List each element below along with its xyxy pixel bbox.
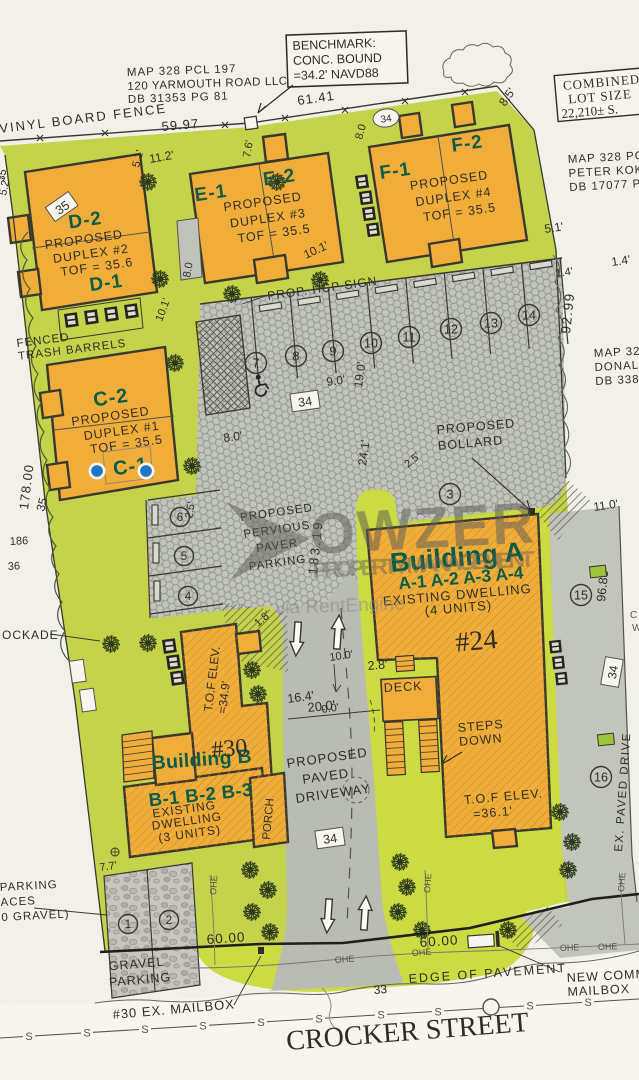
svg-text:OHE: OHE [422, 873, 433, 893]
svg-text:7.7': 7.7' [99, 860, 118, 874]
svg-text:S: S [584, 997, 591, 1009]
svg-text:ACES: ACES [0, 895, 36, 909]
svg-text:OHE: OHE [598, 941, 618, 952]
svg-text:DB 338: DB 338 [595, 374, 639, 388]
svg-text:DONALD: DONALD [594, 359, 639, 374]
svg-text:DECK: DECK [383, 679, 422, 695]
svg-text:7: 7 [253, 357, 260, 371]
svg-text:1: 1 [125, 919, 131, 931]
svg-text:F-1: F-1 [378, 159, 412, 184]
svg-text:OCKADE: OCKADE [2, 628, 59, 642]
svg-text:S: S [141, 1024, 148, 1036]
svg-text:OHE: OHE [208, 875, 219, 895]
svg-text:=34.2' NAVD88: =34.2' NAVD88 [293, 66, 379, 83]
svg-text:14: 14 [522, 309, 536, 323]
svg-text:S: S [199, 1021, 206, 1033]
svg-text:60.00: 60.00 [419, 932, 459, 950]
svg-text:33: 33 [373, 982, 388, 997]
svg-text:OHE: OHE [616, 872, 627, 892]
svg-text:16: 16 [594, 771, 608, 785]
svg-text:34: 34 [322, 831, 338, 847]
svg-text:34: 34 [380, 113, 393, 126]
svg-text:#30: #30 [210, 735, 248, 764]
svg-text:36: 36 [8, 560, 21, 573]
svg-text:OHE: OHE [560, 942, 580, 953]
svg-text:34: 34 [605, 664, 621, 680]
svg-text:S: S [257, 1017, 264, 1029]
svg-text:8.0': 8.0' [222, 428, 243, 445]
svg-text:E-2: E-2 [262, 165, 297, 190]
svg-text:34: 34 [297, 394, 313, 410]
svg-text:8: 8 [293, 350, 300, 364]
svg-text:F-2: F-2 [450, 131, 484, 156]
svg-text:60.00: 60.00 [206, 929, 246, 947]
svg-text:OHE: OHE [334, 954, 354, 965]
svg-text:W: W [632, 623, 639, 634]
svg-text:20.0': 20.0' [307, 697, 336, 715]
svg-text:1.4': 1.4' [555, 266, 574, 280]
svg-text:10: 10 [364, 337, 378, 351]
svg-text:S: S [83, 1028, 90, 1040]
svg-text:via RentEngine: via RentEngine [275, 594, 405, 619]
svg-text:9: 9 [330, 345, 337, 359]
svg-text:C: C [630, 610, 637, 621]
svg-text:5: 5 [181, 551, 187, 563]
svg-text:#24: #24 [454, 624, 499, 659]
svg-text:1.4': 1.4' [610, 252, 631, 269]
svg-text:15: 15 [574, 589, 588, 603]
svg-text:186: 186 [10, 535, 29, 548]
svg-text:12: 12 [444, 323, 458, 337]
svg-text:S: S [25, 1031, 32, 1043]
svg-text:4: 4 [185, 591, 192, 603]
svg-text:5.1': 5.1' [543, 219, 564, 236]
svg-text:2.8': 2.8' [367, 657, 388, 673]
svg-text:BENCHMARK:: BENCHMARK: [292, 36, 376, 53]
svg-text:2: 2 [166, 915, 172, 927]
svg-text:MAP 32: MAP 32 [594, 346, 639, 360]
svg-text:13: 13 [484, 317, 498, 331]
svg-text:9.0': 9.0' [325, 372, 346, 389]
svg-text:11: 11 [403, 331, 416, 345]
